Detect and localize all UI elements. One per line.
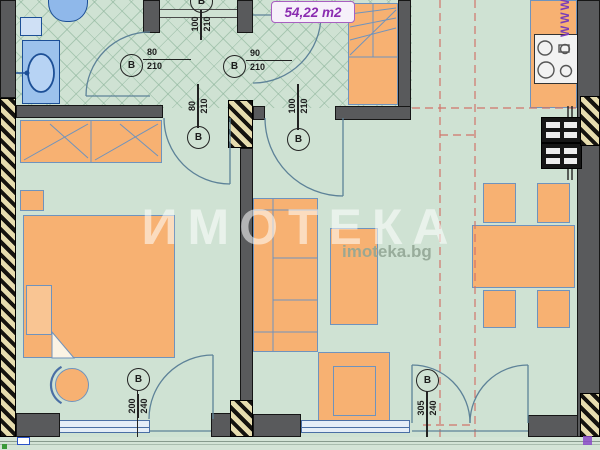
- dining-chair: [537, 290, 570, 328]
- balcony-inner-line: [0, 444, 600, 445]
- duct-shaft-grid: [541, 117, 582, 143]
- door-width: 90: [246, 47, 292, 61]
- door-label-bedroom: 80 210: [185, 91, 211, 121]
- bed-pillow: [26, 285, 52, 335]
- door-label-bedroom-balcony: 200 240: [125, 391, 151, 421]
- door-letter-badge: В: [127, 368, 150, 391]
- door-width: 80: [143, 46, 191, 60]
- wall: [143, 0, 160, 33]
- bathtub-vanity: [22, 40, 60, 104]
- bedroom-wardrobe: [20, 120, 162, 163]
- door-label-living: 100 210: [285, 91, 311, 121]
- duct-shaft-grid: [541, 143, 582, 169]
- cooktop: [534, 34, 578, 84]
- wall: [16, 413, 60, 437]
- door-width: 200: [127, 394, 138, 418]
- door-label-storage: 90 210: [246, 47, 292, 73]
- door-label-living-balcony: 305 240: [414, 393, 440, 423]
- door-width: 80: [187, 94, 198, 118]
- watermark-brand: ИМОТЕКА: [0, 198, 600, 256]
- shaft-column: [230, 400, 253, 437]
- shaft-column: [228, 100, 253, 148]
- wall: [528, 415, 578, 437]
- wall: [0, 0, 16, 98]
- door-height: 210: [299, 94, 309, 118]
- door-letter-badge: В: [120, 54, 143, 77]
- balcony-strip: [0, 437, 600, 450]
- shaft-column: [580, 96, 600, 146]
- wall: [237, 0, 253, 33]
- door-height: 240: [428, 396, 438, 420]
- door-height: 210: [202, 12, 212, 36]
- watermark-side: WWW: [558, 0, 572, 37]
- corner-sink: [20, 17, 42, 36]
- door-label-bath: 80 210: [143, 46, 191, 72]
- corner-marker: [583, 436, 592, 445]
- door-label-entrance: 100 210: [188, 9, 214, 39]
- door-letter-badge: В: [416, 369, 439, 392]
- door-width: 100: [190, 12, 201, 36]
- balcony-edge-line: [0, 441, 600, 442]
- door-width: 305: [416, 396, 427, 420]
- door-height: 210: [246, 61, 292, 73]
- door-letter-badge: В: [287, 128, 310, 151]
- wall: [240, 148, 253, 402]
- wall: [253, 106, 265, 120]
- area-label: 54,22 m2: [271, 1, 355, 23]
- corner-marker: [2, 444, 7, 449]
- door-width: 100: [287, 94, 298, 118]
- watermark-site: imoteka.bg: [342, 242, 432, 262]
- shaft-column: [580, 393, 600, 437]
- door-height: 240: [139, 394, 149, 418]
- round-chair: [55, 368, 89, 402]
- living-window: [301, 420, 410, 433]
- door-letter-badge: В: [187, 126, 210, 149]
- wall: [16, 105, 163, 118]
- shaft-column: [0, 98, 16, 437]
- door-letter-badge: В: [223, 55, 246, 78]
- dining-chair: [483, 290, 516, 328]
- door-height: 210: [143, 60, 191, 72]
- floor-plan: В 80 210 В 90 210 В 100 210 80 210 В 100…: [0, 0, 600, 450]
- armchair-seat: [333, 366, 376, 416]
- survey-marker: [17, 437, 30, 445]
- door-height: 210: [199, 94, 209, 118]
- wall: [398, 0, 411, 120]
- hall-wardrobe: [348, 3, 398, 105]
- wall: [253, 414, 301, 437]
- wall: [335, 106, 411, 120]
